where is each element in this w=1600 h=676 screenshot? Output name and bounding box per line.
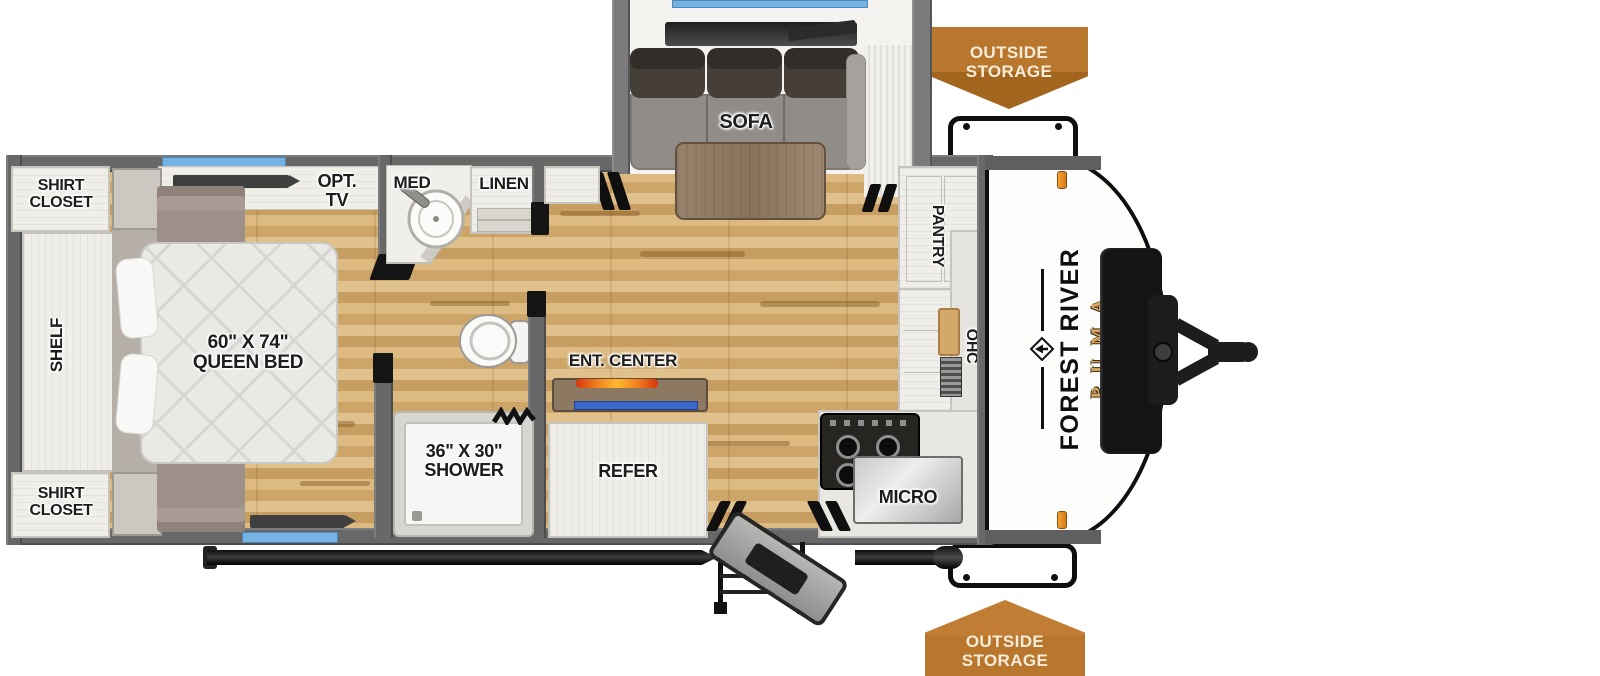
floorplan-canvas: OUTSIDE STORAGE OUTSIDE STORAGE	[0, 0, 1600, 676]
opt-tv-label: OPT. TV	[302, 172, 372, 210]
closet-line2: CLOSET	[14, 503, 108, 520]
window-slideout	[672, 0, 868, 8]
storage-door-bottom	[948, 543, 1077, 588]
opt-tv-line1: OPT.	[302, 172, 372, 191]
dinette-table	[675, 142, 826, 220]
storage-door-screw	[1055, 123, 1062, 130]
med-label: MED	[388, 174, 436, 192]
bedspread-top	[157, 186, 245, 248]
nightstand-bottom	[112, 472, 162, 536]
refer-label: REFER	[578, 462, 678, 481]
window-bedroom-bottom	[242, 532, 338, 543]
linen-drawer	[477, 208, 532, 220]
micro-label: MICRO	[868, 488, 948, 507]
front-cap-top-trim	[985, 156, 1101, 170]
outside-storage-badge-top: OUTSIDE STORAGE	[930, 27, 1088, 109]
floor-grain	[300, 481, 370, 486]
marker-light-top	[1057, 171, 1067, 189]
badge-text-line2: STORAGE	[930, 62, 1088, 81]
closet-line1: SHIRT	[14, 486, 108, 503]
shower-label: 36" X 30" SHOWER	[400, 442, 528, 480]
brand-make: FOREST RIVER	[1056, 224, 1085, 474]
rule-dash	[1041, 269, 1044, 331]
storage-door-screw	[1051, 574, 1058, 581]
fireplace	[576, 379, 658, 388]
sofa-back-cushion	[630, 48, 705, 98]
floor-grain	[430, 301, 510, 306]
awning-end-cap-right	[933, 546, 963, 569]
queen-bed-name: QUEEN BED	[178, 353, 318, 373]
shirt-closet-top-label: SHIRT CLOSET	[14, 178, 108, 212]
closet-line1: SHIRT	[14, 178, 108, 195]
slideout-wall-right	[912, 0, 932, 174]
shower-head	[492, 407, 538, 425]
forest-river-logo-icon	[1030, 337, 1054, 361]
queen-bed-size: 60" X 74"	[178, 333, 318, 353]
shower-size: 36" X 30"	[400, 442, 528, 461]
nightstand-top	[112, 168, 162, 230]
front-cap-bottom-trim	[985, 530, 1101, 544]
hall-cabinet	[544, 166, 600, 204]
pillow	[115, 352, 160, 435]
floor-grain	[760, 301, 880, 307]
trailer-tongue-hitch	[1140, 280, 1262, 424]
shelf-label: SHELF	[37, 303, 77, 387]
sofa-label: SOFA	[704, 112, 788, 133]
ent-center-label: ENT. CENTER	[560, 352, 686, 370]
toilet	[458, 313, 532, 371]
wall-end-cap	[527, 291, 546, 317]
outside-storage-badge-bottom: OUTSIDE STORAGE	[925, 600, 1085, 676]
wall-end-cap	[373, 353, 393, 383]
sofa-armrest	[846, 54, 866, 170]
badge-text-line1: OUTSIDE	[930, 43, 1088, 62]
ent-center-shelf	[574, 401, 698, 410]
opt-tv-bracket-bottom	[250, 515, 345, 528]
linen-label: LINEN	[474, 175, 534, 193]
floor-grain	[640, 251, 745, 257]
sofa-back-cushion	[707, 48, 782, 98]
slideout-wall-left	[612, 0, 630, 174]
forest-river-rule	[1030, 224, 1054, 474]
linen-drawer	[477, 220, 532, 232]
pillow	[115, 256, 160, 339]
opt-tv-line2: TV	[302, 191, 372, 210]
floor-grain	[700, 441, 790, 446]
storage-door-screw	[963, 574, 970, 581]
rule-dash	[1041, 367, 1044, 429]
closet-line2: CLOSET	[14, 195, 108, 212]
shower-name: SHOWER	[400, 461, 528, 480]
marker-light-bottom	[1057, 511, 1067, 529]
wall-end-cap	[531, 202, 549, 235]
badge-text-line2: STORAGE	[925, 651, 1085, 670]
badge-text-line1: OUTSIDE	[925, 632, 1085, 651]
shower-drain	[412, 511, 422, 521]
awning-tube-left	[207, 550, 717, 565]
shirt-closet-bottom-label: SHIRT CLOSET	[14, 486, 108, 520]
queen-bed-label: 60" X 74" QUEEN BED	[178, 333, 318, 373]
stove-knobs	[830, 420, 910, 426]
storage-door-screw	[963, 123, 970, 130]
bedspread-bottom	[157, 462, 245, 532]
floor-grain	[560, 211, 640, 216]
front-cap-branding: FOREST RIVER PUMA	[1030, 224, 1106, 474]
